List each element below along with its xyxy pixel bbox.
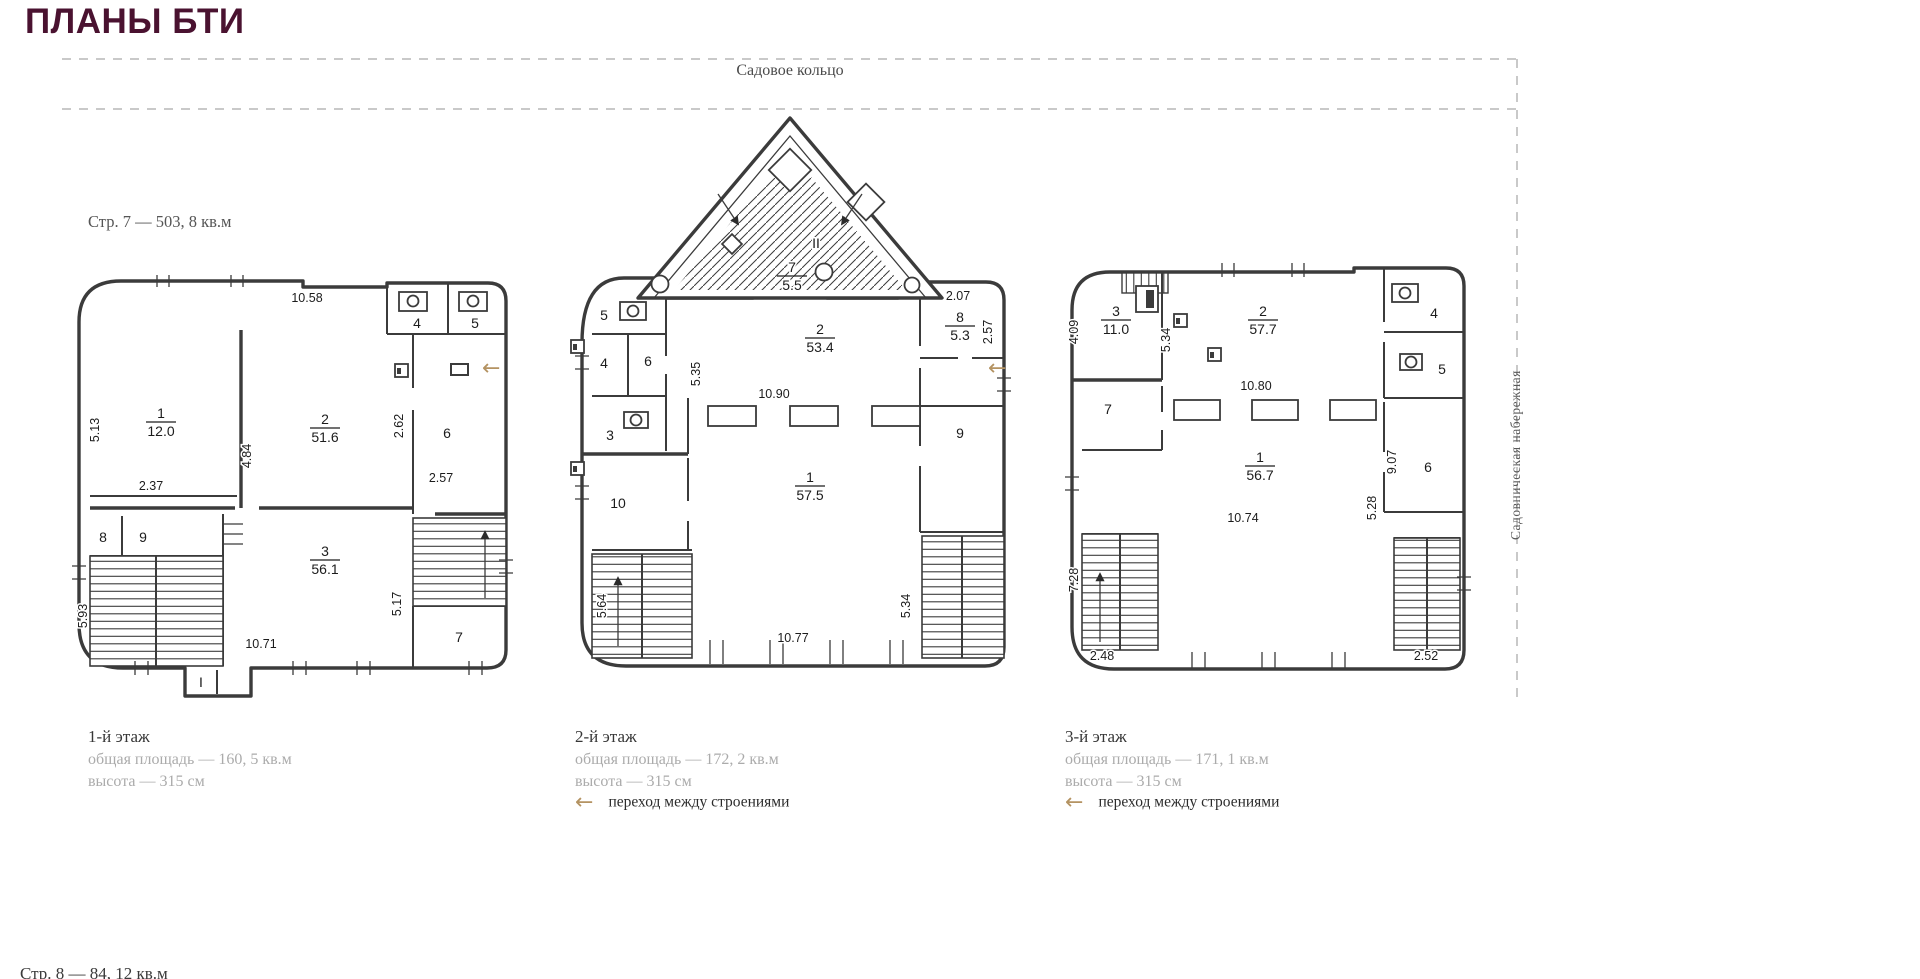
caption-floor-1: 1-й этаж общая площадь — 160, 5 кв.м выс… [88, 726, 292, 794]
svg-text:10.74: 10.74 [1227, 511, 1258, 525]
svg-text:5.34: 5.34 [1159, 328, 1173, 352]
svg-text:10.77: 10.77 [777, 631, 808, 645]
transition-label: переход между строениями [608, 794, 789, 811]
transition-note-2: ←переход между строениями [1065, 792, 1279, 814]
svg-text:1: 1 [806, 469, 814, 485]
stairs-hatch [90, 518, 506, 666]
door-icon [1174, 314, 1221, 361]
pillar-marks [708, 406, 920, 426]
svg-text:2: 2 [816, 321, 824, 337]
floor-area: общая площадь — 172, 2 кв.м [575, 749, 779, 772]
svg-text:5: 5 [1438, 361, 1446, 377]
caption-floor-2: 2-й этаж общая площадь — 172, 2 кв.м выс… [575, 726, 779, 794]
floor-title: 1-й этаж [88, 726, 292, 749]
svg-text:7: 7 [1104, 401, 1112, 417]
svg-text:7: 7 [455, 629, 463, 645]
svg-text:4: 4 [600, 355, 608, 371]
stairs-hatch [1082, 534, 1460, 650]
svg-text:2: 2 [1259, 303, 1267, 319]
transition-note-1: ←переход между строениями [575, 792, 789, 814]
closet-icon [1136, 286, 1158, 312]
svg-text:6: 6 [644, 353, 652, 369]
svg-text:5.34: 5.34 [899, 594, 913, 618]
passage-arrow-icon: ← [482, 358, 500, 380]
svg-text:5.17: 5.17 [390, 592, 404, 616]
svg-text:7: 7 [788, 259, 796, 275]
dashed-divider-top [62, 58, 1518, 60]
svg-text:2.57: 2.57 [429, 471, 453, 485]
svg-text:2: 2 [321, 411, 329, 427]
svg-text:57.7: 57.7 [1249, 321, 1276, 337]
svg-text:2.07: 2.07 [946, 289, 970, 303]
transition-label: переход между строениями [1098, 794, 1279, 811]
floor-area: общая площадь — 160, 5 кв.м [88, 749, 292, 772]
svg-text:4.84: 4.84 [240, 444, 254, 468]
door-icon [395, 364, 408, 377]
svg-text:1: 1 [157, 405, 165, 421]
svg-text:6: 6 [443, 425, 451, 441]
svg-text:9.07: 9.07 [1385, 450, 1399, 474]
svg-text:5.13: 5.13 [88, 418, 102, 442]
svg-text:11.0: 11.0 [1103, 321, 1129, 337]
svg-text:6: 6 [1424, 459, 1432, 475]
transition-arrow-icon: ← [575, 792, 593, 814]
passage-arrow-icon: ← [988, 358, 1006, 380]
toilet-icon [399, 292, 487, 311]
svg-text:5.3: 5.3 [950, 327, 970, 343]
svg-text:8: 8 [99, 529, 107, 545]
floor-height: высота — 315 см [1065, 771, 1269, 794]
floor-title: 3-й этаж [1065, 726, 1269, 749]
svg-text:8: 8 [956, 309, 964, 325]
floor-plan-2: 75.5253.485.3157.5II54631095.3510.902.07… [568, 106, 1018, 691]
svg-text:5: 5 [600, 307, 608, 323]
passage-indicator-1: ← [450, 358, 500, 380]
svg-text:2.52: 2.52 [1414, 649, 1438, 663]
clipped-next-section-label: Стр. 8 — 84, 12 кв.м [20, 964, 168, 979]
svg-text:I: I [199, 674, 203, 690]
building-area-label: Стр. 7 — 503, 8 кв.м [88, 212, 231, 232]
svg-text:3: 3 [1112, 303, 1120, 319]
svg-text:2.57: 2.57 [981, 320, 995, 344]
svg-text:10.90: 10.90 [758, 387, 789, 401]
svg-text:9: 9 [139, 529, 147, 545]
floor-plan-1: 112.0251.6356.1456897I5.1310.584.842.372… [65, 268, 510, 703]
pillar-marks [1174, 400, 1376, 420]
svg-text:5.93: 5.93 [76, 604, 90, 628]
svg-text:53.4: 53.4 [806, 339, 833, 355]
floor-height: высота — 315 см [575, 771, 779, 794]
floor-area: общая площадь — 171, 1 кв.м [1065, 749, 1269, 772]
svg-text:1: 1 [1256, 449, 1264, 465]
caption-floor-3: 3-й этаж общая площадь — 171, 1 кв.м выс… [1065, 726, 1269, 794]
page-title: ПЛАНЫ БТИ [25, 2, 245, 42]
passage-door-rect [450, 363, 469, 376]
bti-plans-page: ПЛАНЫ БТИ Садовое кольцо Садовническая н… [0, 0, 1920, 979]
floor-title: 2-й этаж [575, 726, 779, 749]
svg-text:4: 4 [1430, 305, 1438, 321]
svg-text:57.5: 57.5 [796, 487, 823, 503]
svg-text:4: 4 [413, 315, 421, 331]
svg-text:II: II [812, 235, 820, 251]
svg-text:51.6: 51.6 [311, 429, 338, 445]
svg-text:5.35: 5.35 [689, 362, 703, 386]
svg-text:2.37: 2.37 [139, 479, 163, 493]
svg-text:5.64: 5.64 [595, 594, 609, 618]
street-label-naberezhnaya: Садовническая набережная [1508, 200, 1524, 540]
svg-text:2.62: 2.62 [392, 414, 406, 438]
svg-text:5: 5 [471, 315, 479, 331]
svg-text:4.09: 4.09 [1067, 320, 1081, 344]
svg-text:10.80: 10.80 [1240, 379, 1271, 393]
svg-text:5.28: 5.28 [1365, 496, 1379, 520]
svg-text:10: 10 [610, 495, 626, 511]
svg-text:7.28: 7.28 [1067, 568, 1081, 592]
svg-text:2.48: 2.48 [1090, 649, 1114, 663]
svg-text:9: 9 [956, 425, 964, 441]
floor-height: высота — 315 см [88, 771, 292, 794]
svg-text:10.71: 10.71 [245, 637, 276, 651]
svg-text:3: 3 [606, 427, 614, 443]
svg-text:56.1: 56.1 [311, 561, 338, 577]
svg-text:3: 3 [321, 543, 329, 559]
floor-plan-3: 311.0257.7156.774564.095.3410.809.0710.7… [1058, 262, 1478, 697]
svg-text:10.58: 10.58 [291, 291, 322, 305]
transition-arrow-icon: ← [1065, 792, 1083, 814]
toilet-icon [1392, 284, 1422, 370]
svg-text:12.0: 12.0 [147, 423, 174, 439]
passage-indicator-2: ← [988, 358, 1006, 380]
svg-text:5.5: 5.5 [782, 277, 802, 293]
svg-text:56.7: 56.7 [1246, 467, 1273, 483]
street-label-sadovoe-koltso: Садовое кольцо [620, 62, 960, 80]
